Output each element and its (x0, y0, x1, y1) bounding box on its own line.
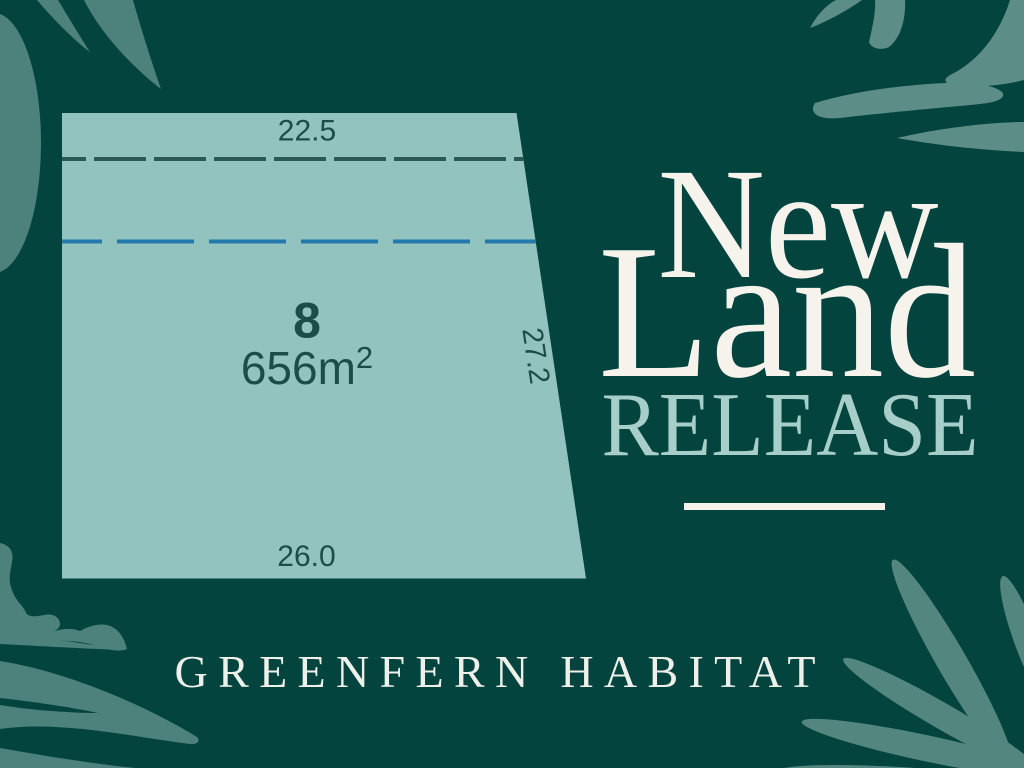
svg-text:8: 8 (293, 293, 321, 349)
svg-text:656m2: 656m2 (241, 340, 373, 394)
svg-text:22.5: 22.5 (278, 115, 336, 148)
svg-text:26.0: 26.0 (277, 540, 335, 573)
svg-text:RELEASE: RELEASE (602, 374, 979, 475)
svg-text:GREENFERN HABITAT: GREENFERN HABITAT (175, 646, 816, 697)
